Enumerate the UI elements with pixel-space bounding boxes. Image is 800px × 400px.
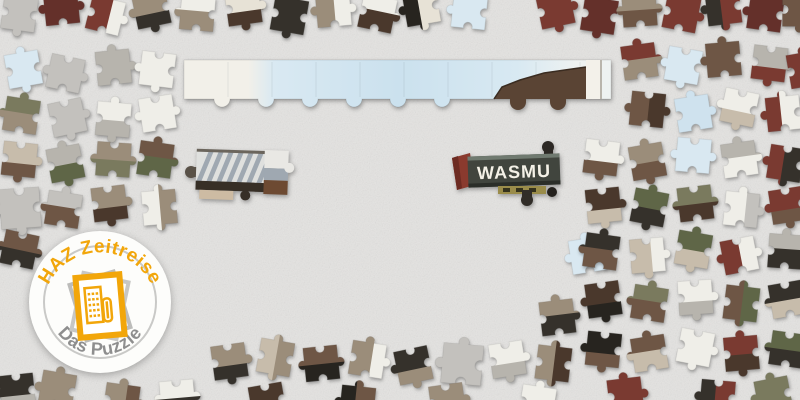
puzzle-piece[interactable] [0,133,45,184]
puzzle-piece[interactable] [130,86,184,140]
puzzle-piece[interactable] [575,131,627,183]
puzzle-board: WASMU HAZ Zeitreise Das Puzzle [0,0,800,400]
puzzle-piece[interactable] [715,183,766,234]
puzzle-piece[interactable] [340,332,394,386]
puzzle-piece[interactable] [262,0,316,42]
puzzle-piece[interactable] [716,328,767,379]
puzzle-piece[interactable] [621,83,672,134]
puzzle-piece[interactable] [39,89,95,145]
puzzle-piece[interactable] [760,272,800,326]
puzzle-piece[interactable] [692,372,743,400]
wasmu-sign-text: WASMU [477,161,552,184]
puzzle-piece[interactable] [622,230,673,281]
puzzle-piece[interactable] [620,134,674,188]
puzzle-piece[interactable] [666,222,720,276]
puzzle-piece[interactable] [83,177,135,229]
puzzle-piece[interactable] [761,323,800,376]
puzzle-piece[interactable] [622,180,677,235]
puzzle-piece[interactable] [394,0,448,34]
puzzle-piece[interactable] [712,228,767,283]
puzzle-piece[interactable] [77,0,134,43]
puzzle-piece[interactable] [669,177,721,229]
logo-frames-art [70,272,131,341]
puzzle-piece[interactable] [95,375,148,400]
puzzle-piece[interactable] [577,323,628,374]
puzzle-piece[interactable] [757,87,800,138]
puzzle-piece[interactable] [715,277,767,329]
puzzle-piece[interactable] [203,335,256,388]
puzzle-piece[interactable] [668,320,723,375]
puzzle-piece[interactable] [575,225,628,278]
logo-badge: HAZ Zeitreise Das Puzzle [26,228,174,376]
puzzle-piece[interactable] [443,0,494,37]
puzzle-piece[interactable] [217,0,270,33]
logo-yellow-frame [75,274,124,338]
puzzle-piece[interactable] [123,0,179,37]
puzzle-piece[interactable] [577,273,630,326]
puzzle-piece[interactable] [713,133,766,186]
puzzle-piece[interactable] [668,130,719,181]
puzzle-piece[interactable] [172,0,223,38]
puzzle-piece[interactable] [698,34,749,85]
puzzle-piece[interactable] [622,276,676,330]
puzzle-piece[interactable] [599,369,651,400]
puzzle-piece[interactable] [670,272,720,322]
puzzle-piece[interactable] [531,291,583,343]
puzzle-piece[interactable] [129,133,182,186]
puzzle-piece[interactable] [776,0,800,32]
puzzle-piece[interactable] [760,226,800,276]
puzzle-piece[interactable] [134,182,185,233]
puzzle-piece[interactable] [760,178,800,232]
puzzle-piece[interactable] [577,179,628,230]
